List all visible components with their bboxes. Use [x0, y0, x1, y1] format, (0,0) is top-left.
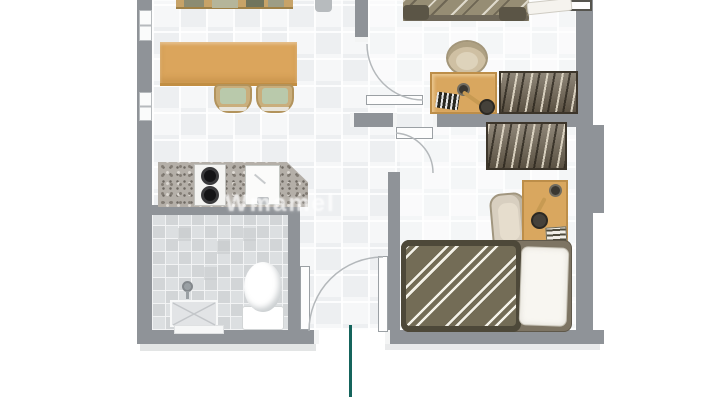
bed2-pillow [519, 246, 570, 327]
chair-seat [262, 88, 288, 104]
dining-chair [214, 84, 252, 113]
wall-cap [314, 330, 319, 344]
bed1-post [403, 5, 429, 20]
bath-mat [174, 325, 224, 334]
wall-shadow [140, 344, 316, 351]
bed2-mattress [406, 246, 516, 326]
shower-head-stem [186, 291, 189, 299]
right-wall [576, 0, 593, 344]
entry-door-leaf [378, 256, 388, 332]
bed1-post [499, 7, 526, 21]
bottom-wall-right [385, 330, 604, 344]
chair-cushion [497, 202, 520, 242]
wall-cap [355, 37, 368, 42]
chair-front-edge [261, 107, 289, 111]
wall-cap [393, 113, 397, 127]
bathroom-right-wall [288, 205, 300, 330]
wall-cap [385, 330, 390, 344]
wall-shadow [385, 344, 600, 350]
desk-lamp-base [531, 212, 548, 229]
entrance-marker-line [349, 325, 352, 397]
wall-cap [433, 113, 437, 127]
bedroom-divider-wall-left [350, 113, 397, 127]
bathroom-dark-tile [178, 228, 191, 241]
floor-plan: Wmamel [0, 0, 720, 420]
chair-cushion [456, 52, 478, 70]
middle-wall-top [355, 0, 368, 42]
keyboard [435, 91, 460, 110]
stove-burner [201, 167, 219, 185]
shower-tray [170, 300, 218, 327]
bedroom1-chair [446, 40, 488, 76]
watermark: Wmamel [225, 190, 336, 218]
bathroom-dark-tile [204, 267, 217, 280]
counter-item [246, 0, 264, 7]
right-wall-step [593, 125, 604, 213]
bottom-wall-left [137, 330, 318, 344]
bedroom1-wardrobe [499, 71, 578, 114]
bedroom2-wardrobe [486, 122, 567, 170]
chair-front-edge [219, 107, 247, 111]
counter-item [212, 0, 238, 8]
bed1 [403, 0, 529, 21]
kitchen-top-counter [176, 0, 293, 9]
appliance [315, 0, 332, 12]
bathroom-door-leaf [300, 266, 310, 330]
bedroom1-door-leaf [366, 95, 423, 105]
hall-bedroom2-wall [388, 172, 400, 330]
desk-lamp-head [549, 184, 562, 197]
counter-item [184, 0, 204, 7]
toilet-bowl [244, 262, 282, 312]
left-wall [137, 0, 152, 344]
counter-item [268, 0, 284, 7]
window-left-lower [139, 92, 152, 121]
chair-seat [220, 88, 246, 104]
bathroom-dark-tile [243, 228, 256, 241]
window-left-upper [139, 10, 152, 41]
wall-cap [350, 113, 354, 127]
sink-drain-line [254, 174, 266, 185]
dining-table [160, 42, 297, 86]
desk-lamp-base [479, 99, 495, 115]
dining-chair [256, 84, 294, 113]
stove-burner [201, 186, 219, 204]
bathroom-dark-tile [217, 241, 230, 254]
bedroom2-door-leaf [396, 127, 433, 139]
